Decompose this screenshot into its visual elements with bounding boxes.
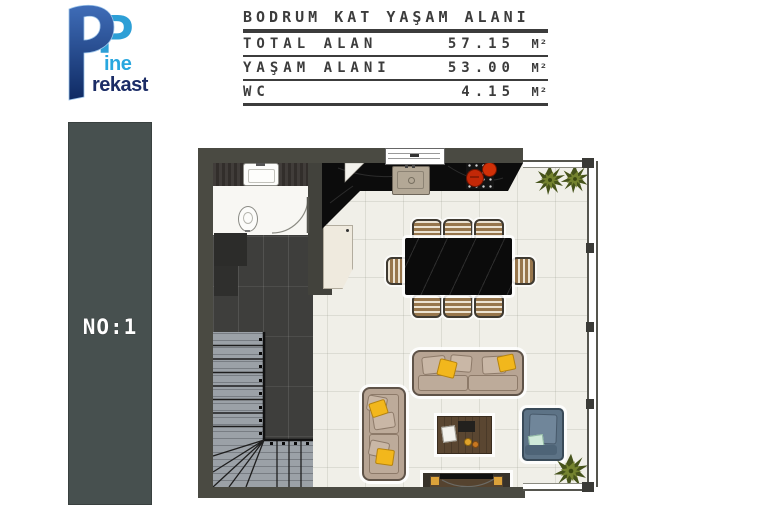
red-pot-icon bbox=[466, 169, 484, 187]
corner-post bbox=[582, 158, 594, 168]
brand-logo: P ine rekast bbox=[64, 2, 214, 102]
row-unit: M² bbox=[515, 85, 548, 99]
row-value: 57.15 bbox=[443, 36, 515, 52]
unit-number-badge: NO:1 bbox=[68, 122, 152, 505]
row-label: YAŞAM ALANI bbox=[243, 60, 443, 76]
row-value: 53.00 bbox=[443, 60, 515, 76]
tv-cable bbox=[442, 479, 494, 487]
floor-plan bbox=[198, 148, 594, 498]
row-value: 4.15 bbox=[443, 84, 515, 100]
kitchen-sink-icon bbox=[392, 166, 430, 195]
area-row-total: TOTAL ALAN 57.15 M² bbox=[243, 33, 548, 57]
wall-bottom bbox=[198, 487, 525, 498]
row-unit: M² bbox=[515, 61, 548, 75]
row-label: TOTAL ALAN bbox=[243, 36, 443, 52]
stairs-icon bbox=[213, 332, 313, 487]
page: P ine rekast BODRUM KAT YAŞAM ALANI TOTA… bbox=[0, 0, 770, 514]
unit-number-label: NO:1 bbox=[83, 315, 138, 339]
red-pot-icon bbox=[482, 162, 497, 177]
window-mullion bbox=[586, 243, 594, 253]
title-block: BODRUM KAT YAŞAM ALANI TOTAL ALAN 57.15 … bbox=[243, 8, 548, 106]
window-mullion bbox=[586, 399, 594, 409]
area-row-wc: WC 4.15 M² bbox=[243, 81, 548, 106]
logo-text-ine: ine bbox=[104, 53, 132, 75]
page-title: BODRUM KAT YAŞAM ALANI bbox=[243, 8, 548, 26]
wall-top bbox=[198, 148, 523, 163]
pine-prekast-logo-icon: P ine rekast bbox=[64, 2, 214, 102]
window-mullion bbox=[586, 322, 594, 332]
logo-text-rekast: rekast bbox=[92, 74, 149, 96]
plan-graphics-overlay bbox=[198, 148, 594, 498]
corner-post bbox=[582, 482, 594, 492]
row-label: WC bbox=[243, 84, 443, 100]
door-swing-icon bbox=[272, 197, 308, 233]
area-row-living: YAŞAM ALANI 53.00 M² bbox=[243, 57, 548, 81]
window-top-icon bbox=[385, 148, 445, 165]
wall-left bbox=[198, 148, 213, 498]
row-unit: M² bbox=[515, 37, 548, 51]
plant-icon bbox=[535, 165, 565, 195]
plant-icon bbox=[561, 165, 590, 194]
